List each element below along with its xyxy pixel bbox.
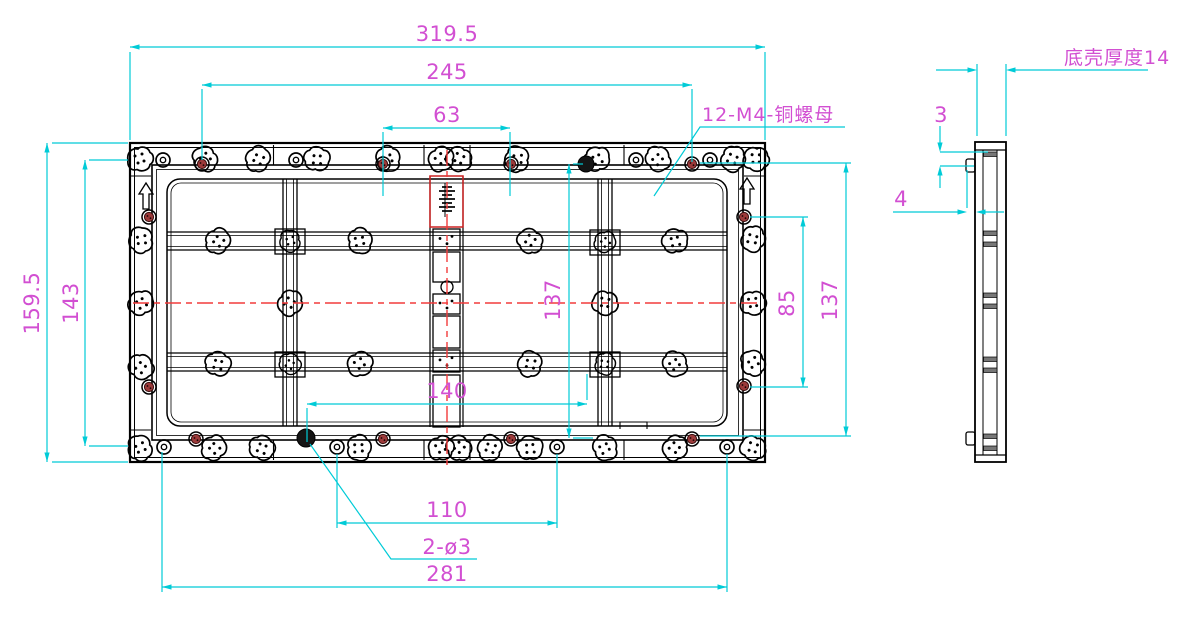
m4-copper-nut-icon	[737, 210, 751, 224]
dimension-arrowhead	[130, 44, 140, 49]
dimension-arrowhead	[937, 166, 942, 176]
side-rib-section	[984, 434, 998, 439]
dimension-arrowhead	[82, 437, 87, 447]
dimension-lines	[44, 44, 1148, 592]
side-rib-section	[984, 242, 998, 247]
hole-callout-label: 2-ø3	[422, 535, 471, 559]
dimension-arrowhead	[958, 209, 968, 214]
mounting-hole-cluster-icon	[591, 229, 618, 255]
side-rib-section	[984, 446, 998, 451]
dimension-arrowhead	[337, 520, 347, 525]
m4-copper-nut-icon	[142, 210, 156, 224]
mounting-hole-cluster-icon	[200, 347, 234, 380]
dim-top-hole-span: 63	[433, 103, 461, 127]
pocket-dot	[451, 300, 454, 303]
m4-copper-nut-icon	[685, 432, 699, 446]
orientation-up-arrow-icon	[139, 183, 153, 209]
mounting-hole-cluster-icon	[344, 432, 373, 463]
dim-right-screw-span: 85	[775, 289, 799, 317]
screw-ring-hole-icon	[157, 440, 171, 454]
side-rib-section	[984, 357, 998, 362]
m4-copper-nut-icon	[189, 432, 203, 446]
pocket-dot	[439, 237, 442, 240]
shell-thickness-label: 底壳厚度14	[1064, 47, 1170, 69]
mounting-hole-cluster-icon	[592, 350, 619, 378]
m4-copper-nut-icon	[737, 379, 751, 393]
dimension-arrowhead	[383, 125, 393, 130]
dimension-arrowhead	[44, 143, 49, 153]
mounting-hole-cluster-icon	[128, 147, 154, 171]
mounting-hole-cluster-icon	[716, 141, 751, 176]
dim-lower-width: 140	[426, 379, 468, 403]
side-rib-section	[984, 304, 998, 309]
pocket-dot	[446, 307, 449, 310]
pocket-dot	[446, 242, 449, 245]
dimension-arrowhead	[800, 217, 805, 227]
dim-bottom-width: 281	[426, 562, 468, 586]
pocket-dot	[451, 356, 454, 359]
mounting-hole-cluster-icon	[641, 142, 674, 176]
mounting-hole-cluster-icon	[514, 434, 544, 463]
dimension-arrowhead	[44, 453, 49, 463]
dimension-arrowhead	[968, 67, 978, 72]
dim-screw-span: 245	[426, 60, 468, 84]
dimension-arrowhead	[843, 163, 848, 173]
dimension-arrowhead	[566, 429, 571, 439]
dimension-arrowhead	[1006, 67, 1016, 72]
dimension-arrowhead	[578, 401, 588, 406]
dimension-arrowhead	[843, 427, 848, 437]
dimension-arrowhead	[718, 584, 728, 589]
m4-copper-nut-icon	[376, 432, 390, 446]
side-rib-section	[984, 368, 998, 373]
dimension-arrowhead	[307, 401, 317, 406]
m4-copper-nut-icon	[504, 432, 518, 446]
dimension-arrowhead	[82, 160, 87, 170]
dimension-labels: 319.5 245 63 12-M4-铜螺母 159.5 143 137 140…	[20, 22, 1170, 586]
dim-side-4: 4	[894, 187, 908, 211]
dimension-arrowhead	[162, 584, 172, 589]
mounting-hole-cluster-icon	[513, 224, 548, 259]
side-profile-outline	[975, 142, 1006, 462]
dim-side-3: 3	[934, 103, 948, 127]
pocket-dot	[439, 359, 442, 362]
dimension-arrowhead	[501, 125, 511, 130]
dim-bottom-hole-span: 110	[426, 498, 468, 522]
dimension-arrowhead	[800, 378, 805, 388]
reference-hole-icon	[297, 429, 315, 447]
dimension-arrowhead	[756, 44, 766, 49]
screw-ring-hole-icon	[330, 440, 344, 454]
dimension-arrowhead	[976, 209, 986, 214]
m4-copper-nut-icon	[142, 380, 156, 394]
pocket-dot	[439, 302, 442, 305]
nut-callout-leader	[654, 127, 845, 196]
dim-inner-height: 143	[59, 282, 83, 324]
dim-mid-height: 137	[541, 279, 565, 321]
engineering-drawing-page: 319.5 245 63 12-M4-铜螺母 159.5 143 137 140…	[0, 0, 1190, 633]
mounting-hole-cluster-icon	[200, 224, 235, 258]
dimension-arrowhead	[202, 82, 212, 87]
m4-copper-nut-icon	[504, 157, 518, 171]
mounting-hole-cluster-icon	[197, 432, 231, 465]
dimension-arrowhead	[548, 520, 558, 525]
pocket-dot	[451, 235, 454, 238]
engineering-drawing-canvas: 319.5 245 63 12-M4-铜螺母 159.5 143 137 140…	[0, 0, 1190, 633]
side-rib-section	[984, 231, 998, 236]
mounting-hole-cluster-icon	[473, 431, 507, 466]
nut-callout-label: 12-M4-铜螺母	[702, 104, 834, 126]
side-rib-section	[984, 152, 998, 157]
dim-total-height: 159.5	[20, 272, 44, 335]
side-rib-section	[984, 293, 998, 298]
side-boss	[966, 432, 975, 445]
dim-right-height: 137	[818, 279, 842, 321]
screw-ring-hole-icon	[720, 440, 734, 454]
orientation-up-arrow-icon	[740, 178, 754, 204]
dimension-arrowhead	[937, 143, 942, 153]
screw-ring-hole-icon	[550, 440, 564, 454]
dimension-arrowhead	[683, 82, 693, 87]
dim-total-width: 319.5	[416, 22, 479, 46]
